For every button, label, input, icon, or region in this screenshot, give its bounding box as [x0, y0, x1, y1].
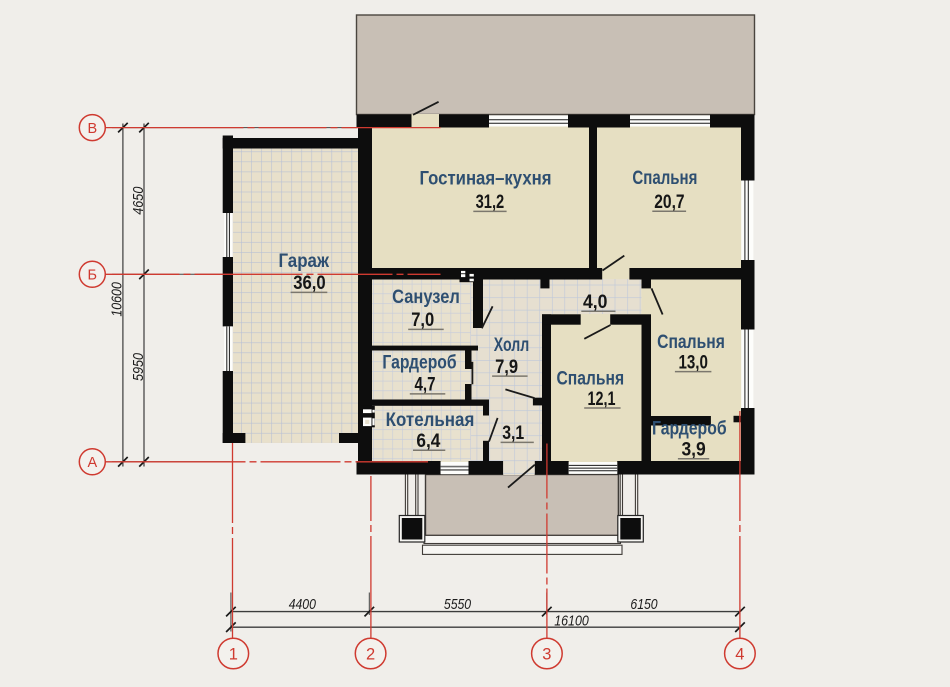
svg-text:Гараж: Гараж: [278, 250, 329, 272]
svg-text:4: 4: [735, 646, 744, 664]
svg-text:Котельная: Котельная: [386, 409, 475, 431]
svg-text:4,7: 4,7: [415, 374, 436, 396]
svg-text:4400: 4400: [289, 596, 317, 613]
svg-text:3,9: 3,9: [681, 439, 705, 461]
svg-text:13,0: 13,0: [678, 351, 708, 373]
svg-text:20,7: 20,7: [654, 191, 684, 213]
svg-text:5550: 5550: [444, 596, 472, 613]
svg-text:10600: 10600: [109, 282, 126, 317]
svg-text:1: 1: [229, 646, 238, 664]
svg-text:Гардероб: Гардероб: [652, 417, 727, 439]
svg-text:7,9: 7,9: [495, 356, 518, 378]
svg-text:Спальня: Спальня: [632, 167, 697, 189]
svg-text:4650: 4650: [130, 186, 147, 215]
svg-text:4,0: 4,0: [583, 291, 608, 313]
svg-text:7,0: 7,0: [411, 309, 434, 331]
svg-text:36,0: 36,0: [293, 272, 325, 294]
svg-text:Санузел: Санузел: [392, 286, 460, 308]
svg-text:Гардероб: Гардероб: [382, 351, 456, 373]
svg-text:Спальня: Спальня: [556, 367, 624, 389]
svg-text:Гостиная–кухня: Гостиная–кухня: [420, 167, 552, 189]
svg-text:3: 3: [542, 646, 551, 664]
svg-text:2: 2: [366, 646, 375, 664]
svg-text:Холл: Холл: [494, 334, 530, 356]
svg-text:6,4: 6,4: [416, 430, 440, 452]
svg-text:12,1: 12,1: [588, 388, 616, 410]
svg-text:6150: 6150: [630, 596, 658, 613]
svg-text:Б: Б: [88, 268, 98, 284]
svg-text:Спальня: Спальня: [657, 331, 725, 353]
svg-text:16100: 16100: [554, 612, 589, 629]
svg-text:В: В: [87, 121, 97, 137]
svg-text:5950: 5950: [130, 352, 147, 381]
svg-text:3,1: 3,1: [502, 422, 524, 444]
svg-text:31,2: 31,2: [476, 191, 505, 213]
svg-text:А: А: [87, 455, 97, 471]
